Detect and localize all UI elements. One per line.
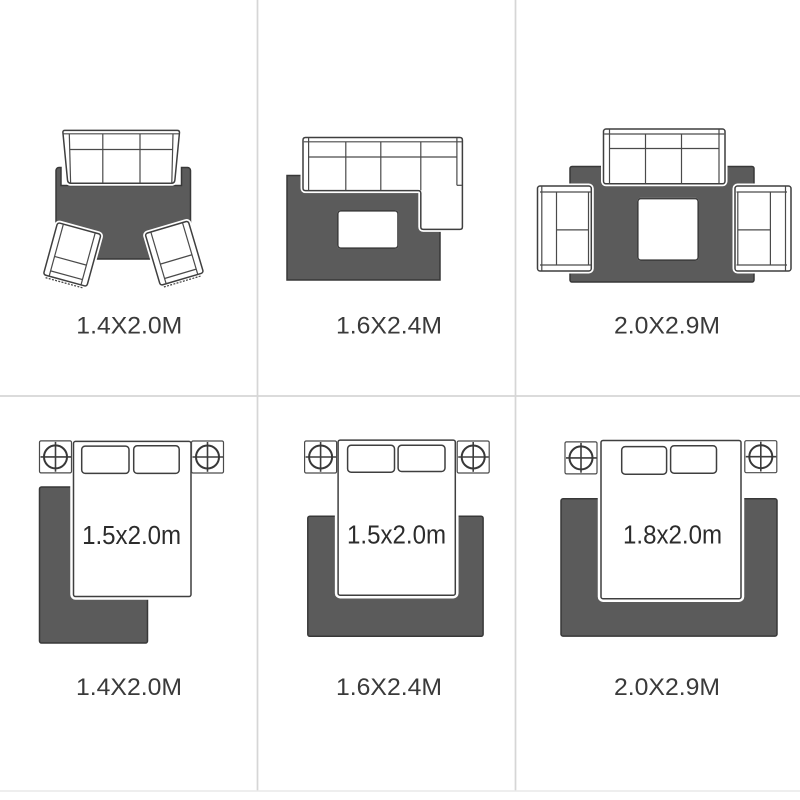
svg-text:2.0X2.9M: 2.0X2.9M (614, 314, 720, 340)
svg-text:1.8x2.0m: 1.8x2.0m (623, 522, 722, 550)
svg-text:1.5x2.0m: 1.5x2.0m (347, 522, 446, 550)
svg-text:2.0X2.9M: 2.0X2.9M (614, 675, 720, 701)
svg-text:1.6X2.4M: 1.6X2.4M (336, 314, 442, 340)
svg-text:1.6X2.4M: 1.6X2.4M (336, 675, 442, 701)
svg-text:1.4X2.0M: 1.4X2.0M (76, 675, 182, 701)
svg-text:1.4X2.0M: 1.4X2.0M (76, 314, 182, 340)
svg-text:1.5x2.0m: 1.5x2.0m (82, 522, 181, 550)
